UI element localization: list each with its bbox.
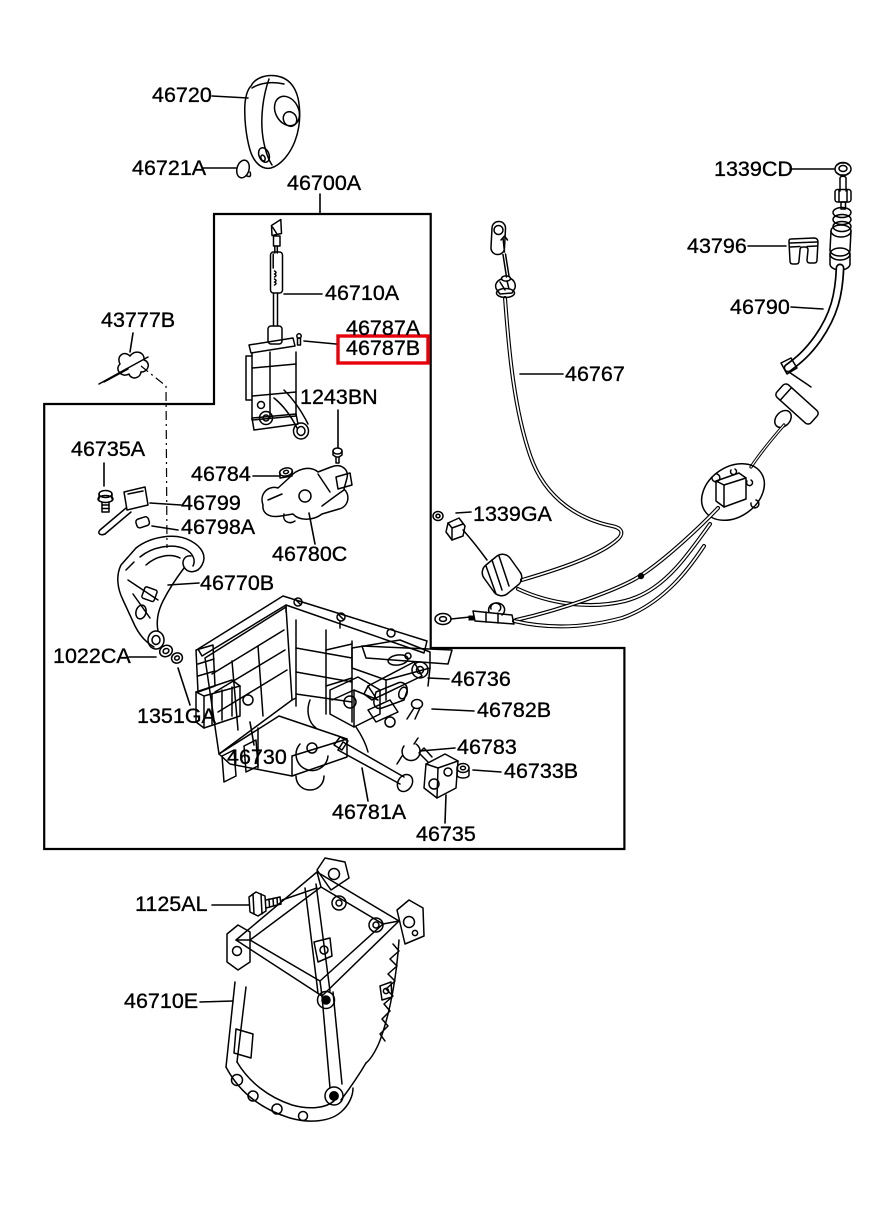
svg-text:1339GA: 1339GA [473,502,553,526]
svg-text:46781A: 46781A [332,800,407,824]
svg-text:46720: 46720 [152,83,212,107]
svg-text:46770B: 46770B [200,571,274,595]
svg-text:46721A: 46721A [132,156,207,180]
svg-text:1243BN: 1243BN [300,385,378,409]
svg-text:46767: 46767 [565,362,625,386]
svg-text:46782B: 46782B [477,698,551,722]
svg-text:46798A: 46798A [181,515,256,539]
svg-text:46733B: 46733B [504,759,578,783]
svg-text:46736: 46736 [451,667,511,691]
svg-text:43777B: 43777B [101,308,175,332]
svg-text:1022CA: 1022CA [53,644,131,668]
svg-text:46700A: 46700A [287,171,362,195]
svg-text:46790: 46790 [730,295,790,319]
svg-text:46787B: 46787B [346,336,420,360]
svg-text:43796: 43796 [687,234,747,258]
svg-text:46799: 46799 [181,491,241,515]
svg-text:46780C: 46780C [272,542,347,566]
svg-text:46783: 46783 [457,735,517,759]
svg-text:46710E: 46710E [124,989,198,1013]
svg-text:46735A: 46735A [71,437,146,461]
svg-text:46735: 46735 [416,822,476,846]
svg-text:46784: 46784 [191,462,251,486]
svg-text:46710A: 46710A [325,281,400,305]
svg-text:1339CD: 1339CD [714,157,793,181]
svg-text:1125AL: 1125AL [135,892,208,916]
